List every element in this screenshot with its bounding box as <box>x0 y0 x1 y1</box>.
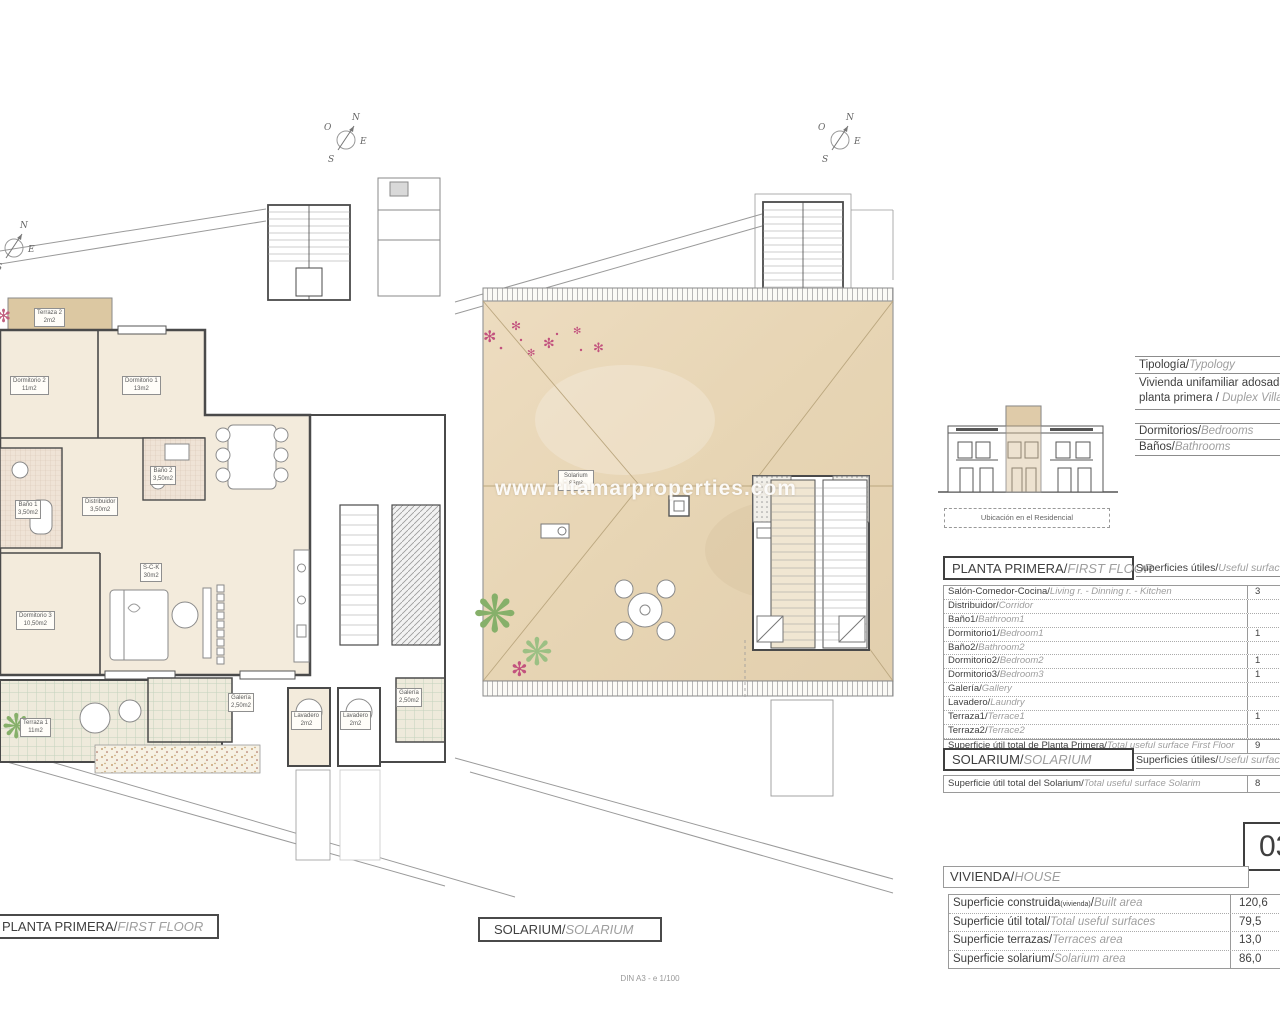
bedrooms-row: Dormitorios/Bedrooms <box>1135 424 1280 440</box>
room-label-sck: S-C-K30m2 <box>140 563 162 582</box>
useful-surfaces-header: Superficies útiles/Useful surfaces <box>1136 562 1280 577</box>
table-row: Distribuidor/Corridor <box>944 600 1280 614</box>
gallery-area <box>148 678 232 742</box>
dining-table <box>216 425 288 489</box>
table-row: Dormitorio2/Bedroom21 <box>944 655 1280 669</box>
table-row: Superficie terrazas/Terraces area 13,0 <box>949 932 1280 951</box>
room-label-terraza1: Terraza 111m2 <box>20 718 51 737</box>
watermark: www.ritamarproperties.com <box>495 477 885 501</box>
kitchen-counter <box>294 550 309 662</box>
room-label-distribuidor: Distribuidor3,50m2 <box>82 497 118 516</box>
svg-text:O: O <box>324 123 332 133</box>
first-floor-plan: ✻ <box>0 170 450 890</box>
neighbour-tower <box>378 178 440 296</box>
compass-icon: N E S O <box>0 212 44 280</box>
vivienda-title: VIVIENDA/HOUSE <box>943 866 1249 888</box>
unit-number: 03 <box>1243 822 1280 871</box>
svg-text:✻: ✻ <box>511 659 528 681</box>
room-label-lavadero1: Lavadero2m2 <box>291 711 322 730</box>
typology-title: Tipología/Typology <box>1135 356 1280 374</box>
room-label-terraza2: Terraza 22m2 <box>34 308 65 327</box>
typology-block: Tipología/Typology Vivienda unifamiliar … <box>1135 356 1280 456</box>
typology-description: Vivienda unifamiliar adosada planta prim… <box>1135 374 1280 410</box>
solarium-table-title: SOLARIUM/SOLARIUM <box>943 748 1134 771</box>
table-row: Terraza2/Terrace2 <box>944 725 1280 739</box>
room-label-galeria: Galería2,50m2 <box>228 693 254 712</box>
room-label-bano1: Baño 13,50m2 <box>15 500 41 519</box>
useful-surfaces-header: Superficies útiles/Useful surfaces <box>1136 754 1280 769</box>
svg-text:✻: ✻ <box>483 329 496 346</box>
bathroom1-area <box>0 448 62 548</box>
svg-text:✻: ✻ <box>511 319 521 333</box>
room-label-lavadero2: Lavadero2m2 <box>340 711 371 730</box>
svg-text:✻: ✻ <box>527 348 535 359</box>
svg-text:N: N <box>845 113 855 123</box>
svg-text:O: O <box>818 123 826 133</box>
svg-text:✻: ✻ <box>593 340 604 355</box>
living-furniture <box>110 585 224 664</box>
svg-text:❋: ❋ <box>473 586 517 644</box>
svg-text:E: E <box>853 137 861 147</box>
svg-text:N: N <box>19 221 29 231</box>
table-row: Baño1/Bathroom1 <box>944 614 1280 628</box>
first-floor-plan-drawing: ✻ <box>0 170 450 890</box>
gravel-band <box>95 745 260 773</box>
table-row: Terraza1/Terrace11 <box>944 711 1280 725</box>
table-row: Superficie solarium/Solarium area 86,0 <box>949 951 1280 969</box>
svg-text:✻: ✻ <box>543 335 555 351</box>
table-row: Dormitorio1/Bedroom11 <box>944 628 1280 642</box>
svg-text:S: S <box>328 155 334 165</box>
deck-bench <box>541 524 569 538</box>
room-label-dormitorio3: Dormitorio 310,50m2 <box>16 611 55 630</box>
table-row: Baño2/Bathroom2 <box>944 642 1280 656</box>
solarium-plan: ✻ ✻ ✻ ✻ ✻ ✻ <box>455 120 895 890</box>
palm-pink-icon: ✻ <box>0 306 11 326</box>
room-label-dormitorio1: Dormitorio 113m2 <box>122 376 161 395</box>
table-row: Superficie útil total/Total useful surfa… <box>949 914 1280 933</box>
planta-primera-table-title: PLANTA PRIMERA/FIRST FLOOR <box>943 556 1134 580</box>
svg-text:S: S <box>0 263 2 273</box>
sheet-scale-note: DIN A3 - e 1/100 <box>560 974 740 983</box>
solarium-plan-drawing: ✻ ✻ ✻ ✻ ✻ ✻ <box>455 120 895 890</box>
svg-text:N: N <box>351 113 361 123</box>
svg-text:✻: ✻ <box>573 326 581 337</box>
room-label-dormitorio2: Dormitorio 211m2 <box>10 376 49 395</box>
table-row: Dormitorio3/Bedroom31 <box>944 669 1280 683</box>
svg-text:E: E <box>27 245 35 255</box>
room-label-galeria2: Galería2,50m2 <box>396 688 422 707</box>
stair-tower-top <box>268 205 350 300</box>
compass-icon: N E S O <box>810 104 870 172</box>
planta-primera-table: Salón-Comedor-Cocina/Living r. - Dinning… <box>943 585 1280 754</box>
table-row: Superficie construida(vivienda)/Built ar… <box>949 895 1280 914</box>
solarium-total-row: Superficie útil total del Solarium/Total… <box>943 775 1280 793</box>
railing-top <box>483 288 893 301</box>
bathrooms-row: Baños/Bathrooms <box>1135 440 1280 456</box>
vivienda-table: Superficie construida(vivienda)/Built ar… <box>948 894 1280 969</box>
location-caption: Ubicación en el Residencial <box>944 508 1110 528</box>
room-label-bano2: Baño 23,50m2 <box>150 466 176 485</box>
svg-text:S: S <box>822 155 828 165</box>
table-row: Galería/Gallery <box>944 683 1280 697</box>
compass-icon: N E S O <box>316 104 376 172</box>
railing-bottom <box>483 681 893 696</box>
solarium-stairs <box>753 476 869 650</box>
table-row: Salón-Comedor-Cocina/Living r. - Dinning… <box>944 586 1280 600</box>
floorplan-sheet: ✻ <box>0 0 1280 1024</box>
table-row: Lavadero/Laundry <box>944 697 1280 711</box>
svg-text:E: E <box>359 137 367 147</box>
solarium-caption: SOLARIUM/SOLARIUM <box>478 917 662 942</box>
first-floor-caption: PLANTA PRIMERA/FIRST FLOOR <box>0 914 219 939</box>
